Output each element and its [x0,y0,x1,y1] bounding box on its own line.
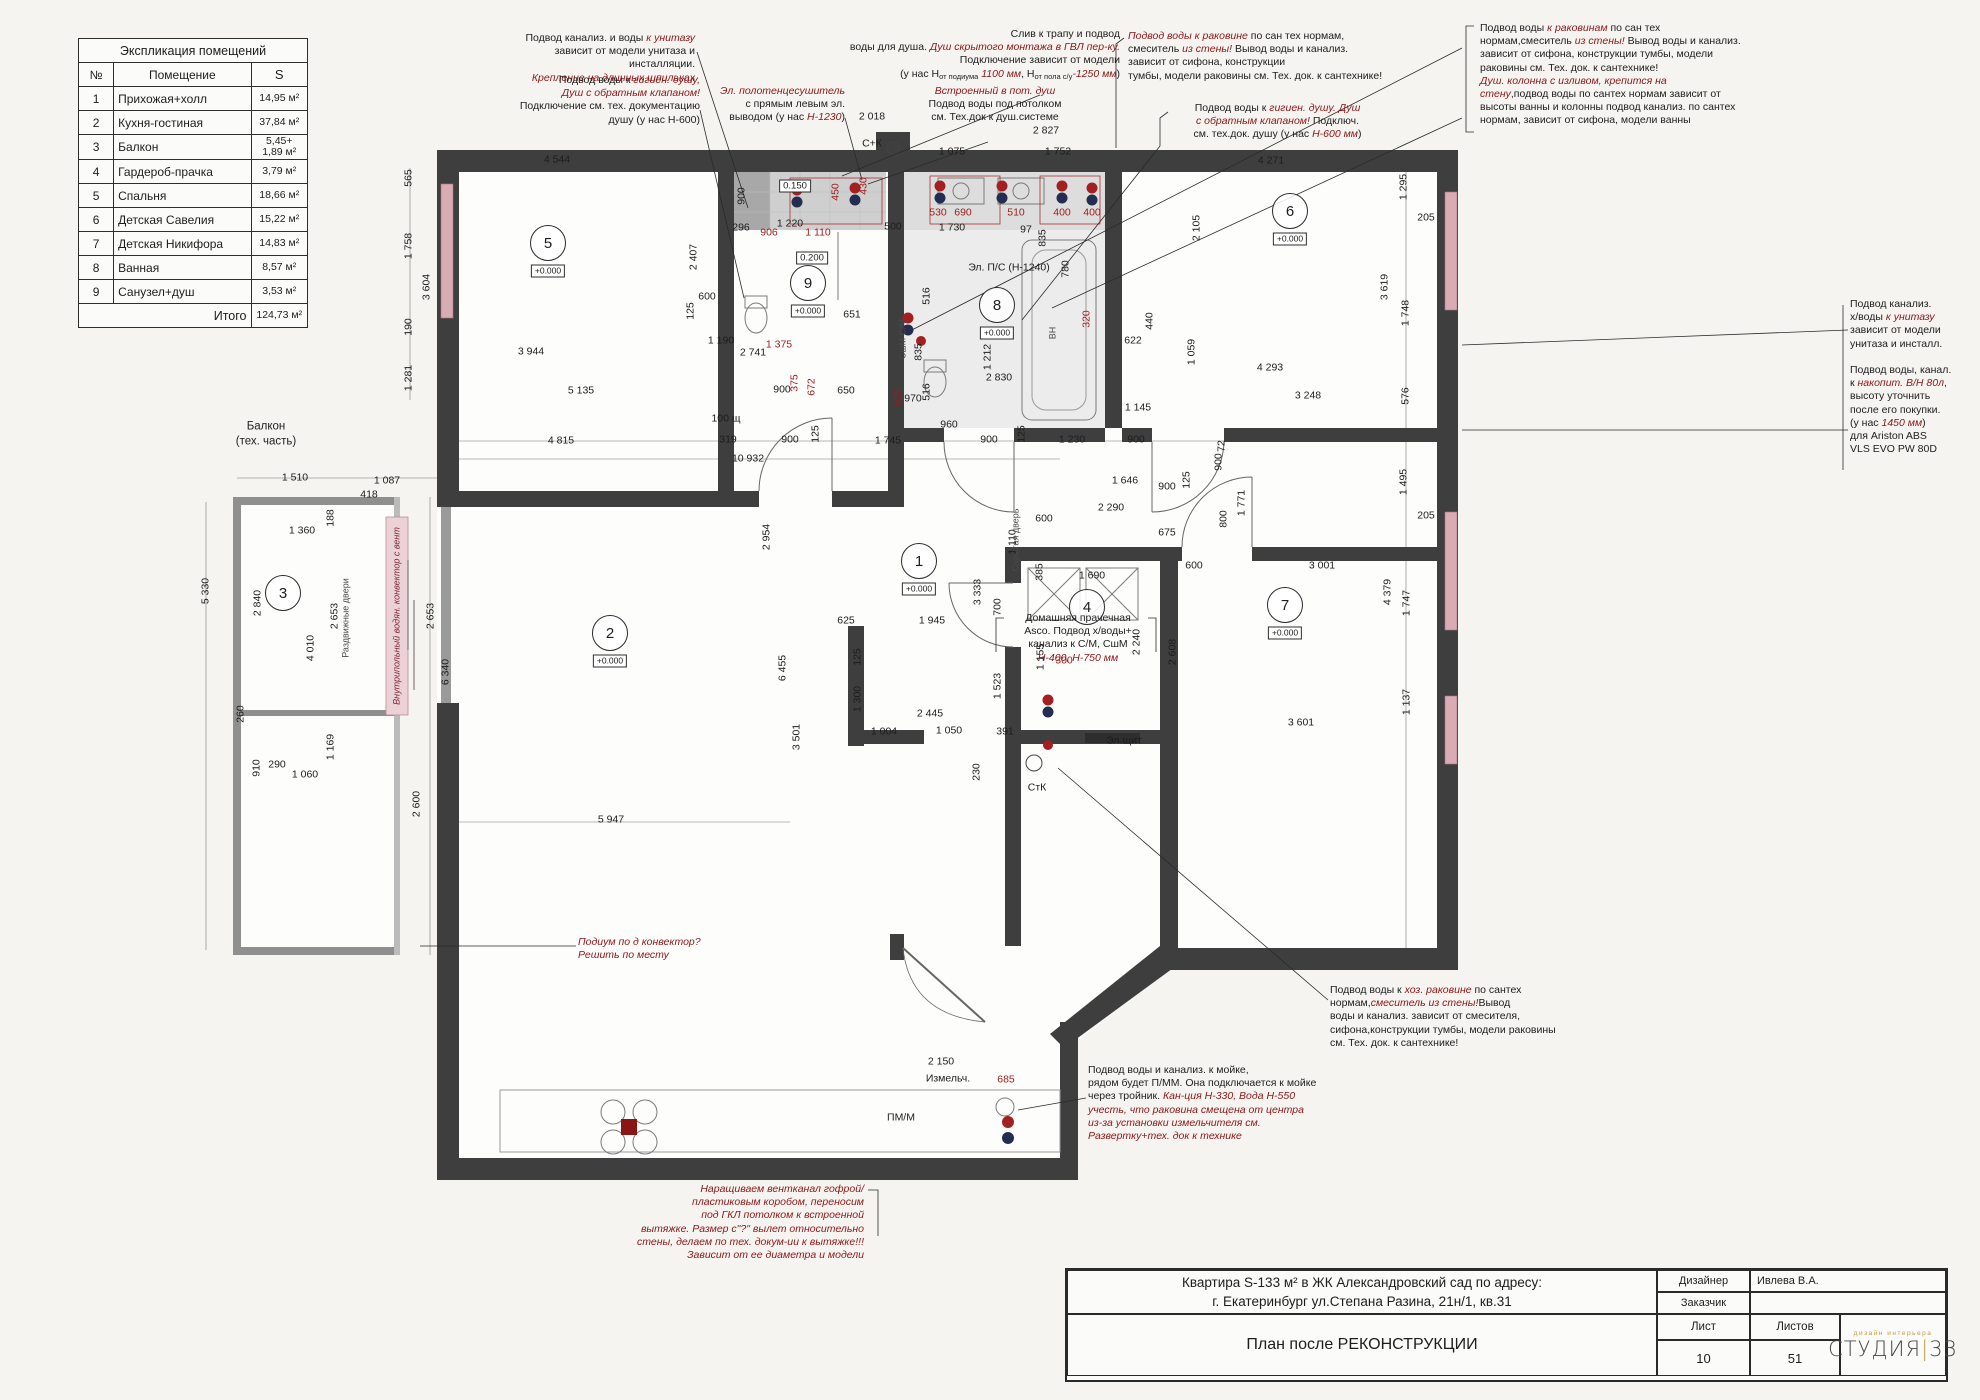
annotation-line: воды для душа. Душ скрытого монтажа в ГВ… [800,41,1120,54]
annotation-line: после его покупки. [1850,404,1975,417]
annotation-line: канализ к С/М, СшМ [1008,638,1148,651]
project-address: Квартира S-133 м² в ЖК Александровский с… [1067,1270,1657,1314]
annotation-line: Подключение см. тех. документацию [495,100,700,113]
explication-row: 3Балкон5,45+ 1,89 м² [79,135,308,160]
elevation-mark: +0.000 [531,265,565,278]
annotation-line: высоту уточнить [1850,390,1975,403]
dimension-label: 960 [940,420,958,431]
designer-label: Дизайнер [1657,1270,1750,1292]
annotation-line: Подвод воды к раковинам по сан тех [1480,22,1798,35]
dimension-label: 5 330 [201,578,212,604]
dimension-label: 1 087 [374,476,400,487]
dimension-label: 900 [1214,453,1225,471]
explication-row: 9Санузел+душ3,53 м² [79,280,308,304]
dimension-label: 1 059 [1187,339,1198,365]
annotation-note: Подиум по д конвектор?Решить по месту [578,936,748,962]
annotation-note: Подвод воды к раковинам по сан технормам… [1480,22,1798,128]
plan-text-label: Балкон [247,422,286,433]
dimension-label: 925 [894,388,905,406]
plan-text-label: Раздвижные двери [341,578,352,658]
dimension-label: 500 [884,222,902,233]
dimension-label: 1 004 [871,727,897,738]
dimension-label: 391 [996,727,1014,738]
dimension-label: 1 748 [1401,300,1412,326]
annotation-line: Слив к трапу и подвод [800,28,1120,41]
dimension-label: 2 608 [1168,639,1179,665]
dimension-label: 2 407 [689,244,700,270]
annotation-line: стены, делаем по тех. докум-ии к вытяжке… [612,1236,864,1249]
annotation-line: см. Тех. док. к сантехнике! [1330,1037,1585,1050]
dimension-label: 800 [1219,510,1230,528]
annotation-line: зависит от сифона, конструкции [1128,56,1418,69]
annotation-note: Подвод воды к хоз. раковине по сантехнор… [1330,984,1585,1050]
annotation-line: Развертку+тех. док к технике [1088,1130,1373,1143]
explication-cell-num: 2 [79,111,114,135]
explication-cell-room: Гардероб-прачка [114,160,251,184]
client-label: Заказчик [1657,1292,1750,1314]
dimension-label: 125 [853,648,864,666]
explication-cell-area: 3,79 м² [251,160,308,184]
dimension-label: 400 [1053,208,1071,219]
annotation-line: Подвод воды к хоз. раковине по сантех [1330,984,1585,997]
annotation-line: Зависит от ее диаметра и модели [612,1249,864,1262]
sheets-label: Листов [1750,1314,1840,1340]
room-number-marker: 1 [901,543,937,579]
dimension-label: 1 212 [983,344,994,370]
dimension-label: 900 [781,435,799,446]
explication-row: 7Детская Никифора14,83 м² [79,232,308,256]
dimension-label: 400 [1083,208,1101,219]
explication-total-row: Итого 124,73 м² [79,304,308,328]
dimension-label: 2 653 [330,603,341,629]
dimension-label: 672 [807,378,818,396]
annotation-line: (у нас 1450 мм) [1850,417,1975,430]
dimension-label: 900 [1158,482,1176,493]
dimension-label: 296 [732,223,750,234]
dimension-label: 2 290 [1098,503,1124,514]
dimension-label: 3 001 [1309,561,1335,572]
dimension-label: 1 375 [766,340,792,351]
room-number-marker: 7 [1267,587,1303,623]
dimension-label: 900 [773,385,791,396]
dimension-label: 3 604 [422,274,433,300]
explication-cell-area: 37,84 м² [251,111,308,135]
annotation-line: учесть, что раковина смещена от центра [1088,1104,1373,1117]
drawing-sheet: Экспликация помещений № Помещение S 1При… [0,0,1980,1400]
explication-header-room: Помещение [114,63,251,87]
annotation-line: тумбы, модели раковины см. Тех. док. к с… [1128,70,1418,83]
dimension-label: 576 [1401,387,1412,405]
dimension-label: 1 281 [404,365,415,391]
dimension-label: 1 752 [1045,147,1071,158]
dimension-label: 418 [360,490,378,501]
dimension-label: 1 145 [1125,403,1151,414]
title-block: Квартира S-133 м² в ЖК Александровский с… [1065,1268,1948,1382]
dimension-label: 600 [1185,561,1203,572]
annotation-line: зависит от модели унитаза и инсталляции. [495,45,695,71]
annotation-line: Душ. колонна с изливом, крепится на [1480,75,1798,88]
project-line1: Квартира S-133 м² в ЖК Александровский с… [1182,1273,1542,1292]
annotation-line: Встроенный в пот. душ [905,85,1085,98]
dimension-label: 125 [1182,471,1193,489]
annotation-line: Подвод воды и канализ. к мойке, [1088,1064,1373,1077]
dimension-label: 430 [859,177,870,195]
explication-cell-num: 6 [79,208,114,232]
dimension-label: 4 815 [548,436,574,447]
explication-total-label: Итого [79,304,252,328]
annotation-line: Наращиваем вентканал гофрой/ [612,1183,864,1196]
dimension-label: 4 271 [1258,156,1284,167]
dimension-label: 1 050 [936,726,962,737]
explication-cell-room: Санузел+душ [114,280,251,304]
dimension-label: 320 [1082,310,1093,328]
dimension-label: 1 220 [777,219,803,230]
explication-cell-area: 14,95 м² [251,87,308,111]
explication-cell-area: 5,45+ 1,89 м² [251,135,308,160]
explication-header-num: № [79,63,114,87]
annotation-line: Asco. Подвод х/воды+ [1008,625,1148,638]
dimension-label: 10 932 [732,454,764,465]
explication-row: 8Ванная8,57 м² [79,256,308,280]
annotation-line: рядом будет П/ММ. Она подключается к мой… [1088,1077,1373,1090]
annotation-line: воды и канализ. зависит от смесителя, [1330,1010,1585,1023]
dimension-label: 2 840 [253,590,264,616]
logo-tagline: дизайн интерьера [1854,1330,1933,1337]
plan-text-label: (тех. часть) [236,437,296,448]
dimension-label: 1 690 [1079,571,1105,582]
dimension-label: 1 945 [919,616,945,627]
dimension-label: 4 544 [544,155,570,166]
plan-text-label: Скрытая дверь [1011,509,1022,572]
room-number-marker: 5 [530,225,566,261]
annotation-line: Подиум по д конвектор? [578,936,748,949]
explication-cell-area: 14,83 м² [251,232,308,256]
explication-header-area: S [251,63,308,87]
explication-title: Экспликация помещений [79,39,308,63]
dimension-label: 1 169 [326,734,337,760]
annotation-line: нормам,смеситель из стены!Вывод [1330,997,1585,1010]
explication-cell-room: Балкон [114,135,251,160]
annotation-line: Подключение зависит от модели [800,54,1120,67]
annotation-note: Подвод воды к раковине по сан тех нормам… [1128,30,1418,83]
annotation-note: Подвод воды к гигиен. душу,Душ с обратны… [495,74,700,127]
dimension-label: 2 445 [917,709,943,720]
annotation-line: Подвод воды, канал. [1850,364,1975,377]
annotation-line: под ГКЛ потолком к встроенной [612,1209,864,1222]
annotation-line: Подвод воды к раковине по сан тех нормам… [1128,30,1418,43]
elevation-mark: +0.000 [1268,627,1302,640]
explication-row: 5Спальня18,66 м² [79,184,308,208]
dimension-label: 1 747 [1402,590,1413,616]
dimension-label: 910 [252,759,263,777]
dimension-label: 690 [954,208,972,219]
dimension-label: 440 [1145,312,1156,330]
annotation-line: вытяжке. Размер с"?" вылет относительно [612,1223,864,1236]
plan-text-label: СтК [1028,783,1047,794]
annotation-line: зависит от сифона, конструкции тумбы, мо… [1480,48,1798,61]
dimension-label: 2 653 [426,603,437,629]
elevation-mark: +0.000 [593,655,627,668]
dimension-label: 205 [1417,213,1435,224]
annotation-note: Домашняя прачечнаяAsco. Подвод х/воды+ка… [1008,612,1148,665]
dimension-label: 835 [914,343,925,361]
dimension-label: 4 293 [1257,363,1283,374]
annotation-line: сифона,конструкции тумбы, модели раковин… [1330,1024,1585,1037]
explication-cell-room: Прихожая+холл [114,87,251,111]
room-number-marker: 6 [1272,193,1308,229]
explication-cell-num: 7 [79,232,114,256]
dimension-label: 1 771 [1237,490,1248,516]
dimension-label: 510 [1007,208,1025,219]
dimension-label: 1 300 [853,686,864,712]
annotation-line: через тройник. Кан-ция Н-330, Вода Н-550 [1088,1090,1373,1103]
sheets-total: 51 [1750,1340,1840,1376]
explication-cell-num: 1 [79,87,114,111]
annotation-line: Подвод воды к гигиен. душу, [495,74,700,87]
explication-body: 1Прихожая+холл14,95 м²2Кухня-гостиная37,… [79,87,308,304]
explication-cell-num: 8 [79,256,114,280]
explication-cell-num: 3 [79,135,114,160]
plan-text-label: Эл.щит [1106,736,1142,747]
dimension-label: 385 [1035,563,1046,581]
dimension-label: 450 [831,183,842,201]
explication-cell-area: 3,53 м² [251,280,308,304]
explication-cell-num: 9 [79,280,114,304]
dimension-label: 5 947 [598,815,624,826]
explication-cell-room: Ванная [114,256,251,280]
plan-text-label: С+К [862,139,882,150]
annotation-line: пластиковым коробом, переносим [612,1196,864,1209]
project-line2: г. Екатеринбург ул.Степана Разина, 21н/1… [1212,1292,1512,1311]
dimension-label: 3 248 [1295,391,1321,402]
dimension-label: 3 501 [792,724,803,750]
explication-total-value: 124,73 м² [251,304,308,328]
drawing-title: План после РЕКОНСТРУКЦИИ [1067,1314,1657,1376]
dimension-label: 290 [268,760,286,771]
explication-cell-num: 5 [79,184,114,208]
dimension-label: 4 379 [1383,579,1394,605]
explication-cell-num: 4 [79,160,114,184]
annotation-line: смеситель из стены! Вывод воды и канализ… [1128,43,1418,56]
dimension-label: 650 [837,386,855,397]
sheet-number: 10 [1657,1340,1750,1376]
dimension-label: 685 [997,1075,1015,1086]
studio-logo: дизайн интерьера СТУДИЯ|33 [1840,1314,1946,1376]
explication-cell-room: Детская Никифора [114,232,251,256]
dimension-label: 260 [236,705,247,723]
dimension-label: 125 [1017,425,1028,443]
dimension-label: 600 [1035,514,1053,525]
dimension-label: 0.150 [779,180,811,193]
annotation-line: Подвод канализ. и воды к унитазу [495,32,695,45]
dimension-label: 1 745 [875,436,901,447]
dimension-label: 4 010 [306,635,317,661]
designer-name: Ивлева В.А. [1750,1270,1946,1292]
explication-cell-area: 15,22 м² [251,208,308,232]
explication-cell-room: Спальня [114,184,251,208]
plan-text-label: 100 щ [711,414,740,425]
logo-wordmark: СТУДИЯ|33 [1828,1337,1958,1361]
annotation-note: Подвод воды к гигиен. душу. Душс обратны… [1160,102,1395,142]
dimension-label: 319 [719,435,737,446]
annotation-note: Эл. полотенцесушительс прямым левым эл.в… [675,85,845,125]
annotation-line: Домашняя прачечная [1008,612,1148,625]
elevation-mark: +0.000 [980,327,1014,340]
dimension-label: 516 [922,287,933,305]
dimension-label: 5 135 [568,386,594,397]
dimension-label: 3 944 [518,347,544,358]
annotation-line: к накопит. В/Н 80л, [1850,377,1975,390]
dimension-label: 2 827 [1033,126,1059,137]
plan-text-label: ВН [1048,327,1059,340]
annotation-line: стену,подвод воды по сантех нормам завис… [1480,88,1798,101]
dimension-label: 1 295 [1399,174,1410,200]
elevation-mark: +0.000 [902,583,936,596]
elevation-mark: +0.000 [791,305,825,318]
dimension-label: 906 [760,228,778,239]
explication-row: 6Детская Савелия15,22 м² [79,208,308,232]
explication-row: 1Прихожая+холл14,95 м² [79,87,308,111]
dimension-label: 125 [686,302,697,320]
dimension-label: 1 730 [939,223,965,234]
annotation-line: высоты ванны и колонны подвод канализ. п… [1480,101,1798,114]
dimension-label: 2 830 [986,373,1012,384]
dimension-label: 565 [404,169,415,187]
annotation-line: Решить по месту [578,949,748,962]
annotation-note: Слив к трапу и подводводы для душа. Душ … [800,28,1120,83]
dimension-label: 190 [404,318,415,336]
dimension-label: 72 [1217,440,1228,452]
dimension-label: 1 060 [292,770,318,781]
dimension-label: 1 510 [282,473,308,484]
annotation-line: с прямым левым эл. [675,98,845,111]
plan-text-label: Внутрипольный водян. конвектор с вент [392,527,403,705]
explication-row: 4Гардероб-прачка3,79 м² [79,160,308,184]
explication-cell-area: 8,57 м² [251,256,308,280]
annotation-line: выводом (у нас Н-1230) [675,111,845,124]
room-number-marker: 8 [979,287,1015,323]
annotation-note: Наращиваем вентканал гофрой/пластиковым … [612,1183,864,1262]
plan-text-label: ПМ/М [887,1113,915,1124]
dimension-label: 600 [698,292,716,303]
dimension-label: 0.200 [796,252,828,265]
annotation-line: с обратным клапаном! Подключ. [1160,115,1395,128]
dimension-label: 530 [929,208,947,219]
dimension-label: 516 [922,383,933,401]
dimension-label: 2 954 [762,524,773,550]
dimension-label: 1 758 [404,233,415,259]
dimension-label: 1 646 [1112,476,1138,487]
dimension-label: 188 [326,509,337,527]
dimension-label: 1 230 [1059,435,1085,446]
annotation-line: (у нас Нот подиума 1100 мм, Нот пола с/у… [800,68,1120,83]
annotation-line: из-за установки измельчителя см. [1088,1117,1373,1130]
annotation-line: нормам, зависит от сифона, модели ванны [1480,114,1798,127]
annotation-note: Подвод воды, канал.к накопит. В/Н 80л,вы… [1850,364,1975,456]
annotation-line: Эл. полотенцесушитель [675,85,845,98]
room-number-marker: 9 [790,265,826,301]
plan-text-label: Эл. П/С (Н-1240) [968,263,1050,274]
explication-table: Экспликация помещений № Помещение S 1При… [78,38,308,328]
plan-text-label: СшМ С/М [898,319,909,359]
annotation-line: унитаза и инсталл. [1850,338,1975,351]
dimension-label: 2 600 [412,791,423,817]
dimension-label: 3 619 [1380,274,1391,300]
annotation-note: Подвод воды и канализ. к мойке,рядом буд… [1088,1064,1373,1143]
annotation-line: зависит от модели [1850,324,1975,337]
dimension-label: 205 [1417,511,1435,522]
room-number-marker: 2 [592,615,628,651]
sheet-label: Лист [1657,1314,1750,1340]
dimension-label: 625 [837,616,855,627]
elevation-mark: +0.000 [1273,233,1307,246]
dimension-label: 6 340 [441,659,452,685]
annotation-line: раковины см. Тех. док. к сантехнике! [1480,62,1798,75]
annotation-line: VLS EVO PW 80D [1850,443,1975,456]
client-name [1750,1292,1946,1314]
dimension-label: 1 495 [1399,469,1410,495]
dimension-label: 1 523 [993,673,1004,699]
dimension-label: 97 [1020,225,1032,236]
dimension-label: 900 [1127,435,1145,446]
annotation-note: Встроенный в пот. душПодвод воды под пот… [905,85,1085,125]
dimension-label: 1 110 [805,228,831,239]
dimension-label: 900 [980,435,998,446]
dimension-label: 651 [843,310,861,321]
dimension-label: 700 [993,598,1004,616]
dimension-label: 1 360 [289,526,315,537]
annotation-line: для Ariston ABS [1850,430,1975,443]
dimension-label: 622 [1124,336,1142,347]
annotation-line: Подвод канализ. [1850,298,1975,311]
dimension-label: 3 333 [973,579,984,605]
dimension-label: 6 455 [778,655,789,681]
dimension-label: 2 741 [740,348,766,359]
annotation-line: Подвод воды к гигиен. душу. Душ [1160,102,1395,115]
dimension-label: 1 075 [939,147,965,158]
dimension-label: 780 [1061,260,1072,278]
dimension-label: 230 [972,763,983,781]
annotation-line: нормам,смеситель из стены! Вывод воды и … [1480,35,1798,48]
dimension-label: 1 190 [708,336,734,347]
dimension-label: 835 [1038,229,1049,247]
dimension-label: 2 150 [928,1057,954,1068]
annotation-line: см. Тех.док к душ.системе [905,111,1085,124]
dimension-label: 1 137 [1402,689,1413,715]
dimension-label: 675 [1158,528,1176,539]
explication-cell-room: Кухня-гостиная [114,111,251,135]
dimension-label: 125 [811,425,822,443]
annotation-note: Подвод канализ.х/воды к унитазузависит о… [1850,298,1975,351]
dimension-label: 970 [904,394,922,405]
explication-header: № Помещение S [79,63,308,87]
explication-row: 2Кухня-гостиная37,84 м² [79,111,308,135]
annotation-line: Подвод воды под потолком [905,98,1085,111]
annotation-line: душу (у нас Н-600) [495,114,700,127]
annotation-line: Душ с обратным клапаном! [495,87,700,100]
room-number-marker: 3 [265,575,301,611]
annotation-line: х/воды к унитазу [1850,311,1975,324]
plan-text-label: Измельч. [926,1074,970,1085]
explication-cell-area: 18,66 м² [251,184,308,208]
annotation-line: Н-400, Н-750 мм [1008,652,1148,665]
annotation-line: см. тех.док. душу (у нас Н-600 мм) [1160,128,1395,141]
explication-cell-room: Детская Савелия [114,208,251,232]
dimension-label: 2 105 [1192,215,1203,241]
dimension-label: 2 018 [859,112,885,123]
dimension-label: 900 [737,187,748,205]
dimension-label: 3 601 [1288,718,1314,729]
